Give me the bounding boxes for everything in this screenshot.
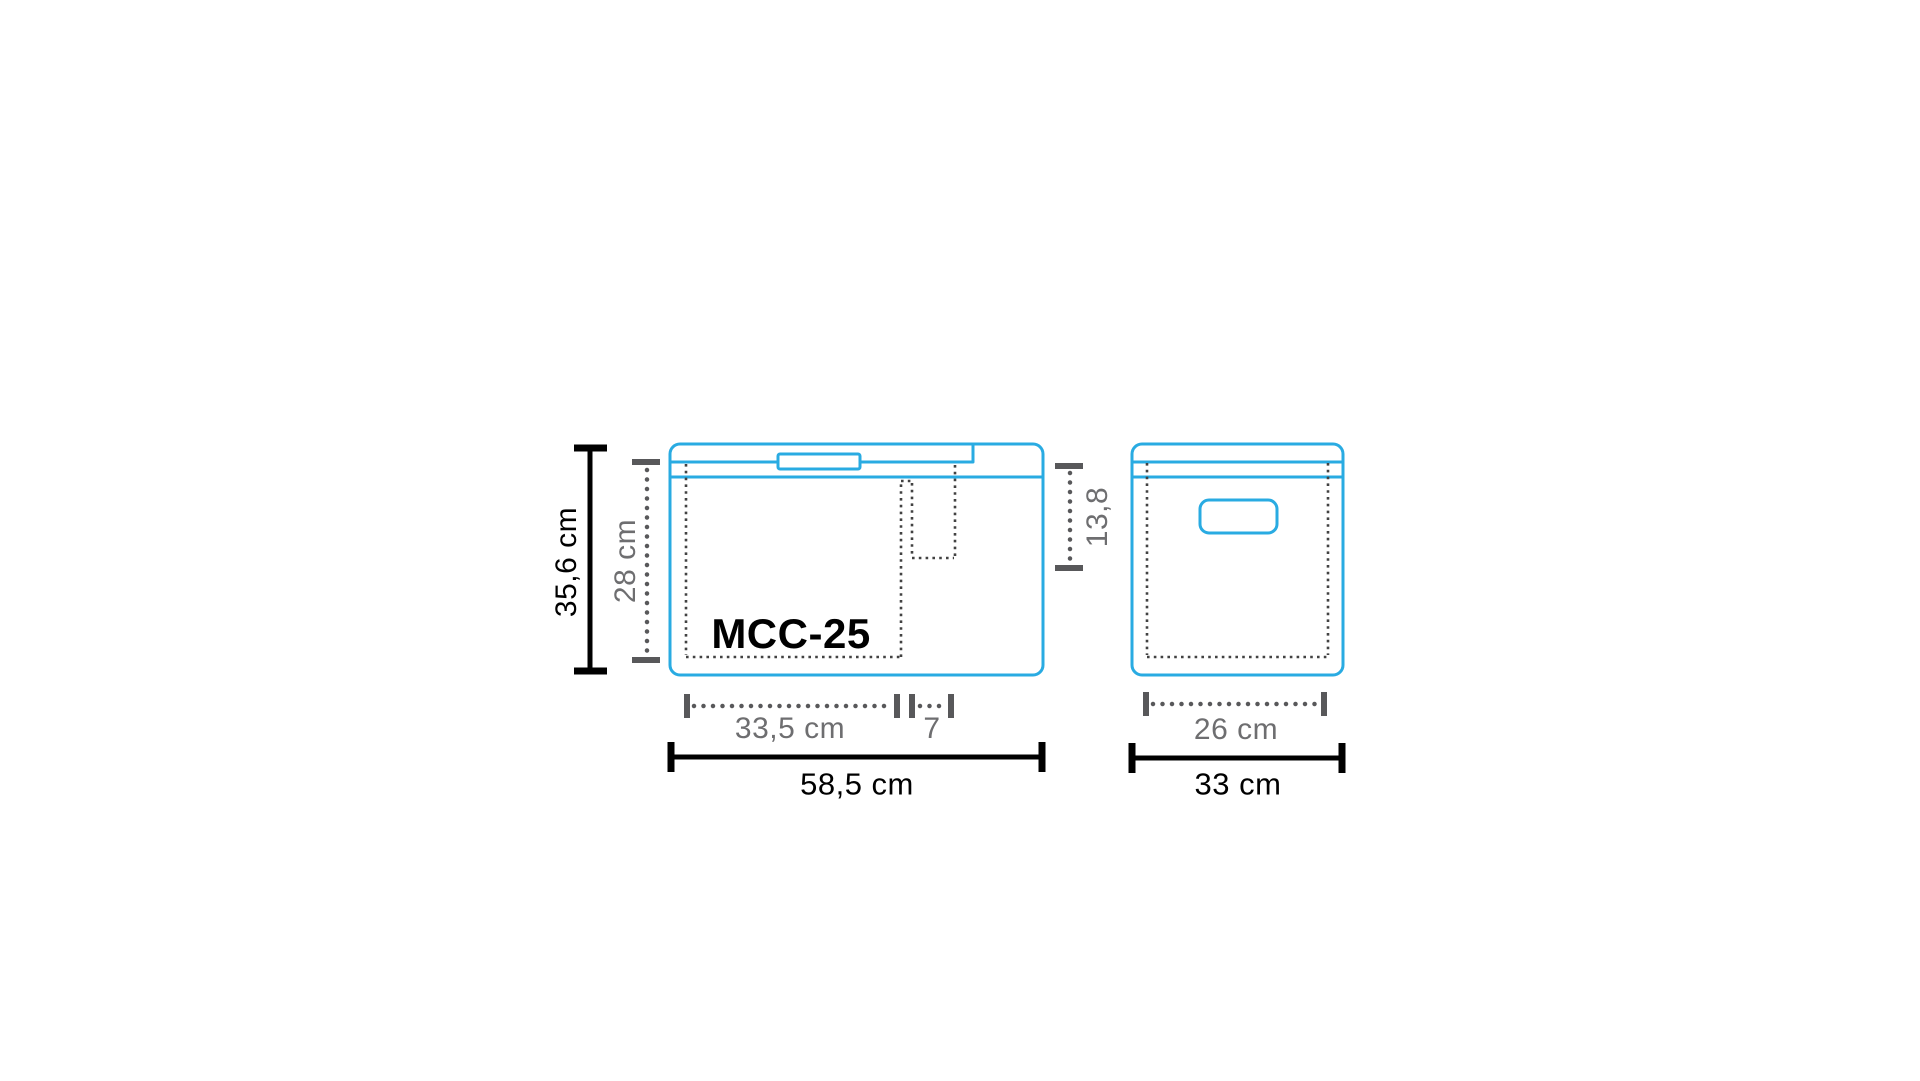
front-overall-height-label: 35,6 cm	[552, 507, 582, 617]
front-lid-latch	[778, 454, 860, 469]
side-view-inner-dashed	[1147, 463, 1328, 657]
cooler-dimension-diagram: 35,6 cm 28 cm MCC-25 13,8 33,5 cm 7 58,5…	[0, 0, 1920, 1081]
side-view-outline	[1132, 444, 1343, 675]
side-overall-width-label: 33 cm	[1195, 769, 1282, 800]
diagram-linework	[0, 0, 1920, 1081]
front-overall-width-label: 58,5 cm	[800, 769, 914, 800]
side-handle	[1200, 500, 1277, 533]
side-inner-width-label: 26 cm	[1194, 715, 1278, 745]
front-inner-height-label: 28 cm	[611, 519, 641, 603]
dim-step-depth	[1055, 466, 1083, 568]
front-step-depth-label: 13,8	[1083, 487, 1113, 547]
front-step-width-label: 7	[923, 714, 940, 744]
front-inner-width-label: 33,5 cm	[735, 714, 845, 744]
model-label: MCC-25	[711, 613, 870, 655]
